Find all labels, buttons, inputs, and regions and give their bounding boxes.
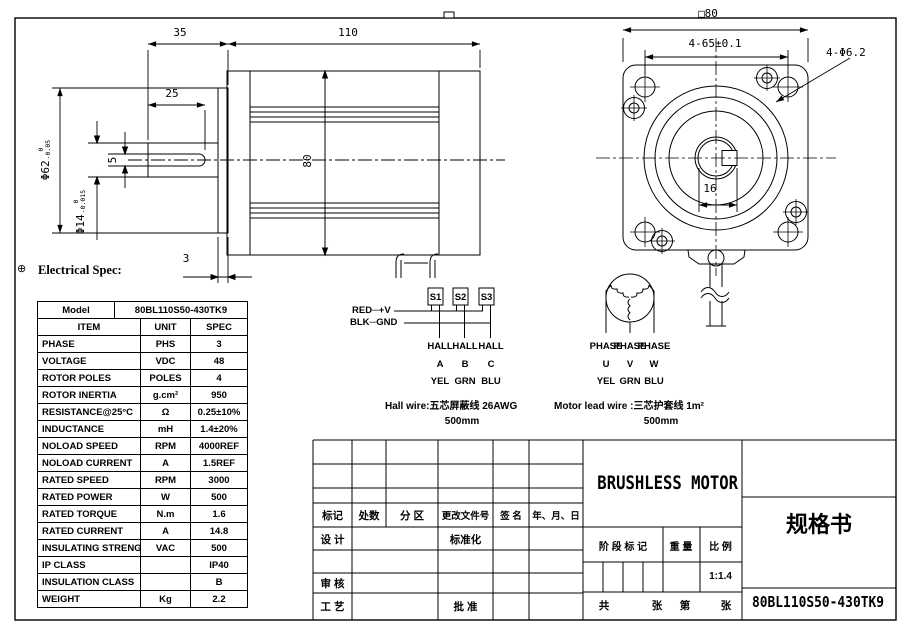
hall-sensor-s2: S2	[451, 292, 470, 303]
tb-sheet-total: 共	[597, 598, 611, 613]
spec-row: PHASEPHS3	[38, 336, 248, 353]
phase-w-title: PHASE	[634, 341, 674, 352]
tb-design: 设 计	[315, 532, 350, 547]
phase-w-color: BLU	[634, 376, 674, 387]
side-view	[148, 71, 480, 278]
spec-cell: NOLOAD CURRENT	[38, 455, 141, 472]
tb-scale-label: 比 例	[701, 538, 740, 553]
dim-3-label: 3	[171, 252, 201, 265]
dim-square80-label: □80	[678, 7, 738, 20]
tb-weight-label: 重 量	[664, 538, 698, 553]
tb-doc-type: 规格书	[742, 507, 896, 539]
spec-cell: RPM	[141, 438, 191, 455]
center-mark-top	[444, 12, 454, 18]
spec-row: RATED SPEEDRPM3000	[38, 472, 248, 489]
motor-lead-length: 500mm	[631, 416, 691, 427]
tb-approve: 批 准	[439, 599, 492, 614]
hall-c-color: BLU	[476, 376, 506, 387]
spec-cell: PHS	[141, 336, 191, 353]
spec-cell: 3000	[191, 472, 248, 489]
spec-col-unit: UNIT	[141, 319, 191, 336]
dim-phi62-value: Φ62	[39, 160, 52, 180]
spec-cell: RPM	[141, 472, 191, 489]
dim-phi14-value: Φ14	[74, 214, 87, 234]
spec-row: NOLOAD SPEEDRPM4000REF	[38, 438, 248, 455]
spec-row: ROTOR INERTIAg.cm²950	[38, 387, 248, 404]
spec-cell: RATED CURRENT	[38, 523, 141, 540]
spec-cell: 1.5REF	[191, 455, 248, 472]
electrical-spec-table: Model 80BL110S50-430TK9 ITEM UNIT SPEC P…	[37, 301, 248, 608]
spec-row: ROTOR POLESPOLES4	[38, 370, 248, 387]
spec-cell: 0.25±10%	[191, 404, 248, 421]
spec-cell: POLES	[141, 370, 191, 387]
dim-phi14-tolerance: 0 -0.015	[73, 190, 87, 213]
spec-cell: IP CLASS	[38, 557, 141, 574]
tb-stage-label: 阶 段 标 记	[585, 538, 661, 553]
dim-25-label: 25	[142, 87, 202, 100]
dim-35-label: 35	[150, 26, 210, 39]
hall-c-label: C	[476, 359, 506, 370]
hall-wire-length: 500mm	[432, 416, 492, 427]
spec-cell: IP40	[191, 557, 248, 574]
tb-rev-count: 处数	[353, 508, 385, 523]
center-mark-icon: ⊕	[17, 262, 26, 275]
spec-cell: mH	[141, 421, 191, 438]
spec-cell: INDUCTANCE	[38, 421, 141, 438]
dim-phi14-label: Φ14 0 -0.015	[72, 172, 88, 252]
spec-cell: g.cm²	[141, 387, 191, 404]
spec-model-value: 80BL110S50-430TK9	[115, 302, 248, 319]
spec-cell: 48	[191, 353, 248, 370]
spec-header-row: ITEM UNIT SPEC	[38, 319, 248, 336]
hall-sensor-s3: S3	[477, 292, 496, 303]
tb-sheet-unit2: 张	[719, 598, 733, 613]
phase-w-label: W	[634, 359, 674, 370]
hall-red-label: RED─+V	[352, 305, 391, 316]
spec-cell: RESISTANCE@25°C	[38, 404, 141, 421]
spec-cell: 3	[191, 336, 248, 353]
spec-row: VOLTAGEVDC48	[38, 353, 248, 370]
tb-standardization: 标准化	[439, 532, 492, 547]
spec-model-label: Model	[38, 302, 115, 319]
front-view-centerlines	[596, 38, 836, 276]
spec-cell: ROTOR POLES	[38, 370, 141, 387]
spec-row: RATED TORQUEN.m1.6	[38, 506, 248, 523]
tb-part-number: 80BL110S50-430TK9	[751, 593, 885, 611]
spec-cell: VAC	[141, 540, 191, 557]
spec-row: RATED POWERW500	[38, 489, 248, 506]
tb-rev-docno: 更改文件号	[439, 508, 492, 522]
spec-col-spec: SPEC	[191, 319, 248, 336]
spec-cell: INSULATING STRENGTH	[38, 540, 141, 557]
spec-cell: 500	[191, 540, 248, 557]
motor-lead-note: Motor lead wire :三芯护套线 1m²	[554, 397, 704, 412]
spec-cell: Ω	[141, 404, 191, 421]
spec-cell: NOLOAD SPEED	[38, 438, 141, 455]
spec-cell: 1.4±20%	[191, 421, 248, 438]
hall-sensor-s1: S1	[426, 292, 445, 303]
spec-row: RESISTANCE@25°CΩ0.25±10%	[38, 404, 248, 421]
dim-80-label: 80	[300, 146, 314, 176]
spec-cell: A	[141, 523, 191, 540]
spec-cell: B	[191, 574, 248, 591]
spec-row: INDUCTANCEmH1.4±20%	[38, 421, 248, 438]
spec-row: IP CLASSIP40	[38, 557, 248, 574]
spec-cell: WEIGHT	[38, 591, 141, 608]
dim-phi62-label: Φ62 0 -0.05	[37, 120, 53, 200]
spec-cell: RATED SPEED	[38, 472, 141, 489]
dim-5-label: 5	[105, 145, 119, 175]
tb-sheet-unit1: 张	[650, 598, 664, 613]
hall-c-title: HALL	[476, 341, 506, 352]
spec-cell	[141, 557, 191, 574]
electrical-spec-heading: Electrical Spec:	[38, 263, 122, 278]
spec-cell: 1.6	[191, 506, 248, 523]
hall-wire-note: Hall wire:五芯屏蔽线 26AWG	[385, 397, 505, 412]
spec-cell: 500	[191, 489, 248, 506]
tb-sheet-no: 第	[678, 598, 692, 613]
spec-row: INSULATING STRENGTHVAC500	[38, 540, 248, 557]
tb-product-title: BRUSHLESS MOTOR	[597, 472, 727, 494]
spec-cell: 2.2	[191, 591, 248, 608]
spec-cell: 14.8	[191, 523, 248, 540]
dim-holes-label: 4-Φ6.2	[826, 46, 886, 59]
spec-row: RATED CURRENTA14.8	[38, 523, 248, 540]
spec-cell: 4000REF	[191, 438, 248, 455]
spec-cell: 4	[191, 370, 248, 387]
spec-cell: RATED POWER	[38, 489, 141, 506]
dim-16-label: 16	[695, 182, 725, 195]
spec-cell: PHASE	[38, 336, 141, 353]
tb-rev-mark: 标记	[315, 508, 350, 523]
tb-scale-value: 1:1.4	[701, 571, 740, 582]
front-view-dimensions	[623, 30, 850, 212]
spec-cell: W	[141, 489, 191, 506]
spec-cell: 950	[191, 387, 248, 404]
tb-rev-zone: 分 区	[387, 508, 437, 523]
spec-model-row: Model 80BL110S50-430TK9	[38, 302, 248, 319]
spec-cell: ROTOR INERTIA	[38, 387, 141, 404]
winding-diagram	[606, 274, 654, 333]
spec-col-item: ITEM	[38, 319, 141, 336]
dim-phi62-tolerance: 0 -0.05	[38, 140, 52, 160]
spec-cell: Kg	[141, 591, 191, 608]
drawing-sheet: 35 110 25 Φ62 0 -0.05 Φ14 0 -0.015 5 3 8…	[0, 0, 904, 627]
spec-row: NOLOAD CURRENTA1.5REF	[38, 455, 248, 472]
spec-row: WEIGHTKg2.2	[38, 591, 248, 608]
tb-process: 工 艺	[315, 599, 350, 614]
dim-bolt-circle-label: 4-65±0.1	[655, 37, 775, 50]
tb-review: 审 核	[315, 576, 350, 591]
spec-cell: INSULATION CLASS	[38, 574, 141, 591]
hall-blk-label: BLK─GND	[350, 317, 397, 328]
spec-cell: A	[141, 455, 191, 472]
spec-cell: VDC	[141, 353, 191, 370]
tb-rev-signature: 签 名	[494, 508, 528, 522]
spec-row: INSULATION CLASSB	[38, 574, 248, 591]
spec-cell: N.m	[141, 506, 191, 523]
spec-cell: VOLTAGE	[38, 353, 141, 370]
spec-cell	[141, 574, 191, 591]
dim-110-label: 110	[318, 26, 378, 39]
tb-rev-date: 年、月、日	[530, 508, 582, 522]
spec-cell: RATED TORQUE	[38, 506, 141, 523]
